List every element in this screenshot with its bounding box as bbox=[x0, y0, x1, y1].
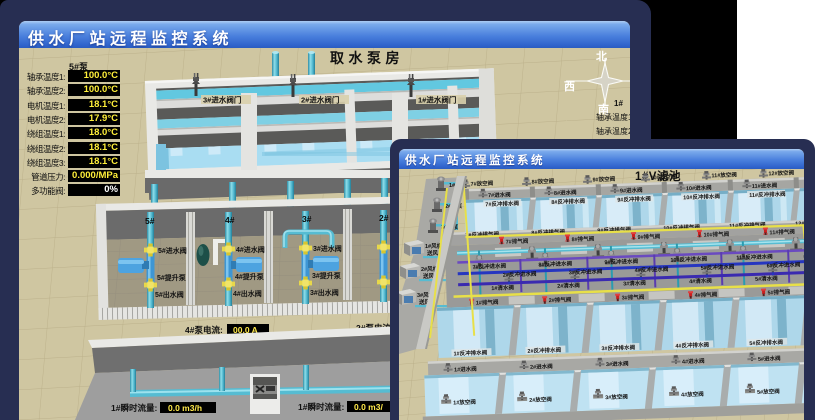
svg-text:5#进水阀: 5#进水阀 bbox=[158, 246, 187, 255]
svg-text:3#提升泵: 3#提升泵 bbox=[312, 271, 341, 280]
svg-text:1#瞬时流量:: 1#瞬时流量: bbox=[298, 402, 344, 412]
svg-text:轴承温度2: 轴承温度2 bbox=[596, 126, 630, 136]
svg-text:送风: 送风 bbox=[422, 272, 435, 280]
svg-text:3#出水阀: 3#出水阀 bbox=[310, 288, 339, 297]
svg-text:1#瞬时流量:: 1#瞬时流量: bbox=[111, 403, 157, 413]
svg-text:0.0 m3/: 0.0 m3/ bbox=[354, 402, 383, 412]
svg-text:1#进水阀门: 1#进水阀门 bbox=[418, 95, 456, 105]
svg-text:3#进水阀: 3#进水阀 bbox=[313, 244, 342, 253]
svg-text:2#进水阀门: 2#进水阀门 bbox=[301, 95, 339, 105]
svg-text:4#: 4# bbox=[225, 215, 235, 225]
svg-text:5#出水阀: 5#出水阀 bbox=[155, 290, 184, 299]
svg-text:3#: 3# bbox=[302, 214, 312, 224]
svg-text:4#泵电流:: 4#泵电流: bbox=[185, 325, 223, 335]
svg-text:4#出水阀: 4#出水阀 bbox=[233, 289, 262, 298]
svg-text:西: 西 bbox=[564, 80, 575, 93]
svg-text:取水泵房: 取水泵房 bbox=[330, 50, 404, 66]
svg-text:12#放空阀: 12#放空阀 bbox=[768, 169, 794, 177]
svg-text:4#进水阀: 4#进水阀 bbox=[236, 245, 265, 254]
svg-text:1#: 1# bbox=[614, 99, 623, 108]
svg-text:2#: 2# bbox=[379, 213, 389, 223]
svg-text:4#提升泵: 4#提升泵 bbox=[235, 272, 264, 281]
svg-text:5#提升泵: 5#提升泵 bbox=[157, 273, 186, 282]
svg-text:0.0 m3/h: 0.0 m3/h bbox=[168, 403, 202, 413]
svg-text:轴承温度1: 轴承温度1 bbox=[596, 112, 630, 122]
svg-text:北: 北 bbox=[596, 49, 607, 63]
svg-text:3#进水阀门: 3#进水阀门 bbox=[203, 95, 241, 105]
svg-text:送风: 送风 bbox=[426, 249, 439, 257]
